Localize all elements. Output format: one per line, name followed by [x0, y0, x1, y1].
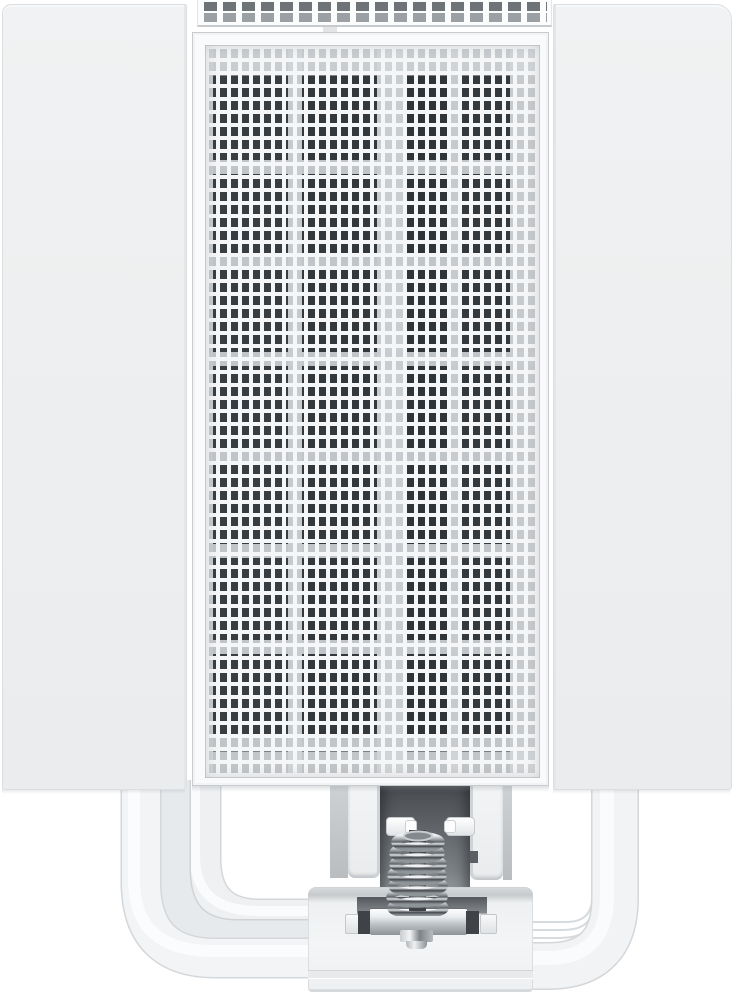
crossbar-notch-right [466, 911, 479, 934]
bracket-arm-notch [470, 851, 478, 863]
spring-top-cap [404, 832, 432, 841]
front-grille-frame [192, 32, 549, 786]
panel-shadow-center [192, 786, 549, 792]
spring-screw-svg [378, 824, 458, 916]
front-mesh [205, 45, 540, 778]
heatpipe-ring-1 [526, 898, 592, 922]
vent-row-1 [204, 2, 547, 11]
product-photo [0, 0, 734, 1000]
bracket-arm-left [348, 786, 380, 878]
top-vent-grille [197, 0, 552, 27]
crossbar-tab-right [480, 914, 497, 934]
bracket-arm-right [470, 786, 503, 880]
mount-strip-right [503, 786, 512, 880]
base-groove [308, 970, 533, 979]
left-side-panel [2, 4, 187, 790]
vent-row-2 [204, 13, 547, 22]
right-side-panel [553, 4, 732, 790]
mount-strip-left [330, 786, 348, 878]
spring-screw-nut-tip [406, 941, 427, 949]
heatpipe-left-rear [202, 780, 322, 918]
